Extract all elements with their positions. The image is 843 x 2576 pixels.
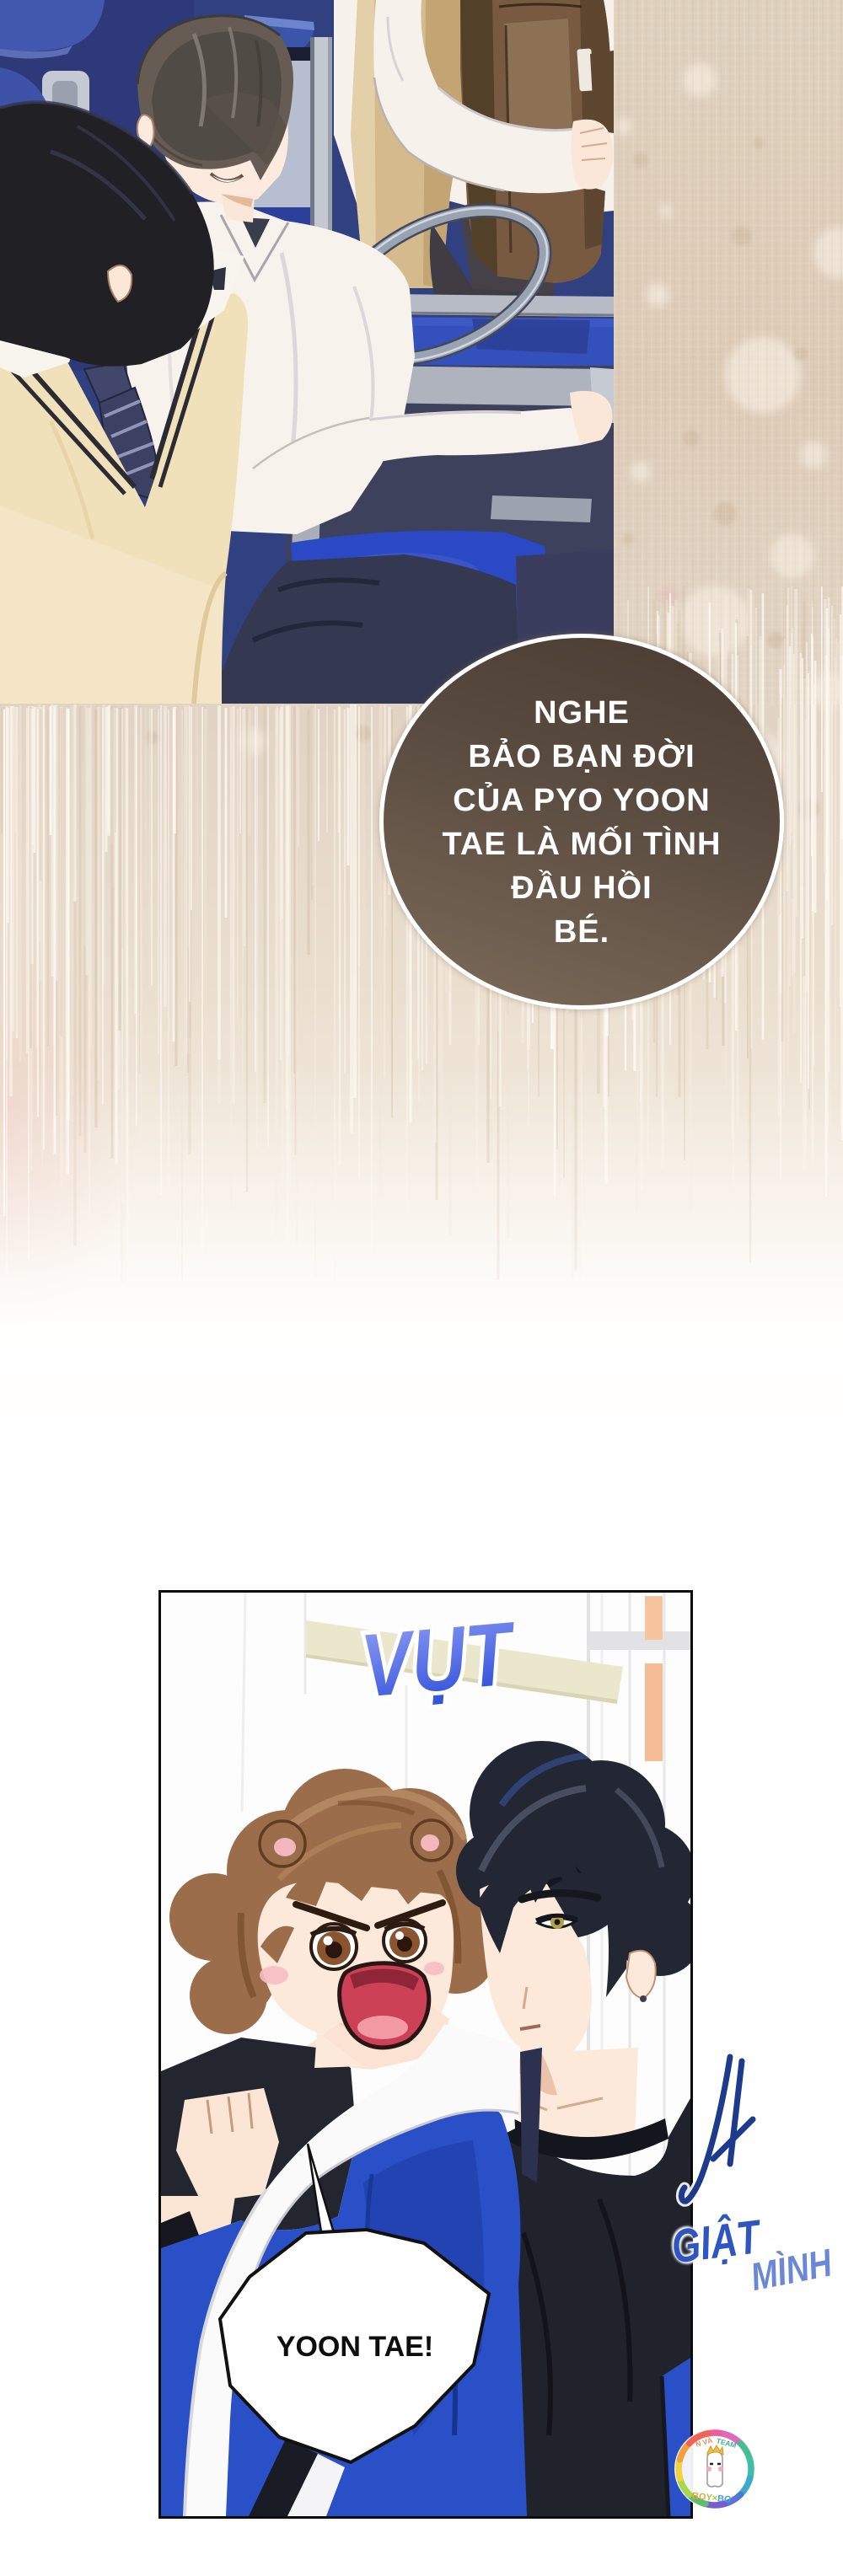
svg-text:YOON TAE!: YOON TAE! [277, 2331, 433, 2363]
svg-text:VỤT: VỤT [357, 1602, 521, 1716]
